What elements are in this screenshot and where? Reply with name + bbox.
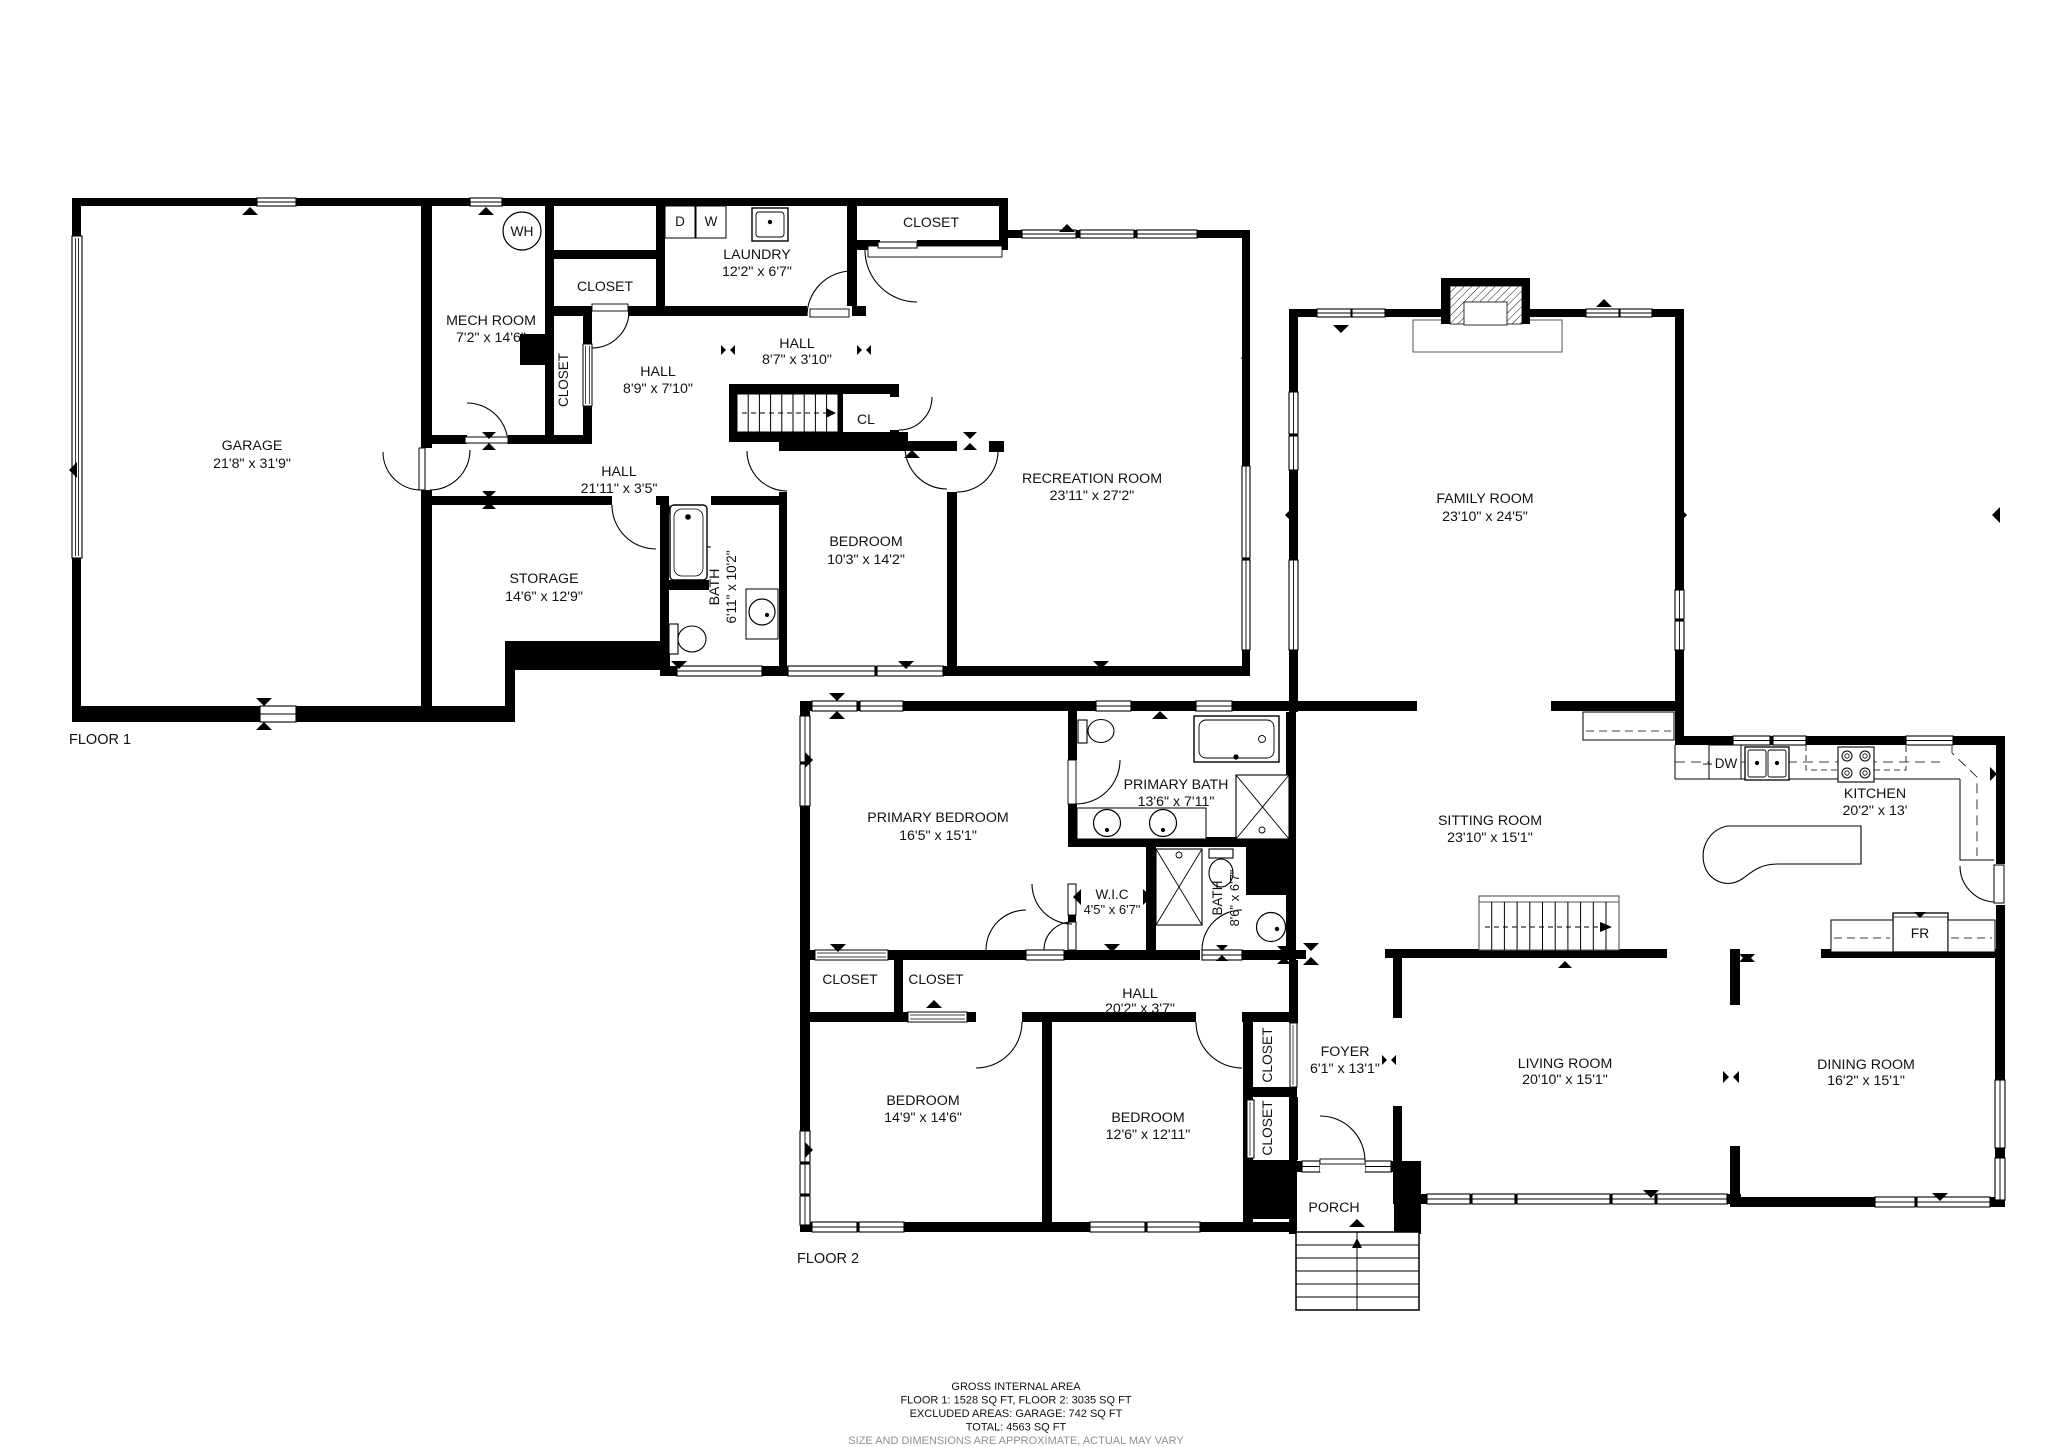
svg-text:BATH: BATH — [1210, 880, 1225, 915]
svg-text:LIVING ROOM: LIVING ROOM — [1518, 1056, 1613, 1072]
svg-text:10'3" x 14'2": 10'3" x 14'2" — [827, 552, 905, 568]
svg-text:PORCH: PORCH — [1308, 1200, 1359, 1216]
svg-text:KITCHEN: KITCHEN — [1844, 786, 1906, 802]
svg-text:BEDROOM: BEDROOM — [1111, 1110, 1184, 1126]
svg-text:HALL: HALL — [640, 364, 676, 380]
svg-text:HALL: HALL — [1122, 986, 1158, 1002]
svg-text:FLOOR 1: FLOOR 1 — [69, 732, 131, 748]
svg-text:8'9" x 7'10": 8'9" x 7'10" — [623, 381, 693, 397]
svg-text:21'11" x 3'5": 21'11" x 3'5" — [581, 481, 658, 497]
svg-text:LAUNDRY: LAUNDRY — [723, 247, 791, 263]
svg-text:20'10" x 15'1": 20'10" x 15'1" — [1522, 1072, 1608, 1088]
svg-text:W.I.C: W.I.C — [1096, 887, 1129, 902]
svg-text:12'2" x 6'7": 12'2" x 6'7" — [722, 264, 792, 280]
svg-text:WH: WH — [511, 224, 534, 239]
svg-text:12'6" x 12'11": 12'6" x 12'11" — [1106, 1127, 1191, 1143]
svg-text:16'5" x 15'1": 16'5" x 15'1" — [899, 828, 977, 844]
svg-text:SIZE AND DIMENSIONS ARE APPROX: SIZE AND DIMENSIONS ARE APPROXIMATE, ACT… — [848, 1435, 1184, 1447]
svg-text:MECH ROOM: MECH ROOM — [446, 313, 536, 329]
svg-text:CLOSET: CLOSET — [577, 278, 633, 294]
svg-text:23'11" x 27'2": 23'11" x 27'2" — [1050, 488, 1135, 504]
svg-text:6'1" x 13'1": 6'1" x 13'1" — [1310, 1061, 1380, 1077]
svg-text:PRIMARY BEDROOM: PRIMARY BEDROOM — [867, 810, 1008, 826]
svg-text:FLOOR 1: 1528 SQ FT, FLOOR 2:: FLOOR 1: 1528 SQ FT, FLOOR 2: 3035 SQ FT — [900, 1395, 1131, 1407]
svg-text:RECREATION ROOM: RECREATION ROOM — [1022, 471, 1162, 487]
svg-text:FOYER: FOYER — [1321, 1044, 1370, 1060]
svg-text:FR: FR — [1911, 926, 1929, 941]
svg-text:STORAGE: STORAGE — [509, 571, 578, 587]
svg-text:13'6" x 7'11": 13'6" x 7'11" — [1138, 794, 1215, 810]
svg-text:8'7" x 3'10": 8'7" x 3'10" — [762, 352, 832, 368]
svg-text:CLOSET: CLOSET — [1260, 1100, 1275, 1156]
svg-text:8'6" x 6'7": 8'6" x 6'7" — [1227, 869, 1242, 926]
svg-text:HALL: HALL — [779, 336, 815, 352]
svg-text:14'9" x 14'6": 14'9" x 14'6" — [884, 1110, 962, 1126]
svg-text:DW: DW — [1715, 756, 1738, 771]
svg-text:7'2" x 14'6": 7'2" x 14'6" — [456, 330, 526, 346]
svg-text:BEDROOM: BEDROOM — [829, 534, 902, 550]
svg-text:20'2" x 3'7": 20'2" x 3'7" — [1105, 1001, 1175, 1017]
svg-text:CLOSET: CLOSET — [556, 353, 571, 407]
svg-text:20'2" x 13': 20'2" x 13' — [1843, 803, 1908, 819]
svg-text:W: W — [705, 214, 718, 229]
svg-text:CLOSET: CLOSET — [908, 972, 964, 987]
svg-text:CLOSET: CLOSET — [822, 972, 878, 987]
svg-text:21'8" x 31'9": 21'8" x 31'9" — [213, 456, 291, 472]
svg-text:GARAGE: GARAGE — [222, 438, 283, 454]
svg-text:23'10" x 15'1": 23'10" x 15'1" — [1447, 830, 1533, 846]
svg-text:CLOSET: CLOSET — [1260, 1027, 1275, 1083]
svg-text:D: D — [675, 214, 685, 229]
svg-text:PRIMARY BATH: PRIMARY BATH — [1124, 777, 1229, 793]
svg-text:EXCLUDED AREAS: GARAGE: 742 SQ: EXCLUDED AREAS: GARAGE: 742 SQ FT — [910, 1408, 1123, 1420]
svg-text:CL: CL — [857, 411, 875, 427]
svg-text:CLOSET: CLOSET — [903, 214, 959, 230]
svg-text:DINING ROOM: DINING ROOM — [1817, 1057, 1915, 1073]
svg-text:4'5" x 6'7": 4'5" x 6'7" — [1084, 902, 1141, 917]
svg-text:HALL: HALL — [601, 464, 637, 480]
svg-text:TOTAL: 4563 SQ FT: TOTAL: 4563 SQ FT — [966, 1422, 1067, 1434]
svg-text:SITTING ROOM: SITTING ROOM — [1438, 813, 1542, 829]
svg-text:16'2" x 15'1": 16'2" x 15'1" — [1827, 1073, 1905, 1089]
svg-text:FAMILY ROOM: FAMILY ROOM — [1436, 491, 1533, 507]
svg-text:FLOOR 2: FLOOR 2 — [797, 1251, 859, 1267]
svg-text:23'10" x 24'5": 23'10" x 24'5" — [1442, 509, 1528, 525]
svg-text:BATH: BATH — [707, 569, 723, 606]
svg-text:GROSS INTERNAL AREA: GROSS INTERNAL AREA — [951, 1381, 1081, 1393]
svg-text:6'11" x 10'2": 6'11" x 10'2" — [724, 550, 739, 623]
svg-text:14'6" x 12'9": 14'6" x 12'9" — [505, 589, 583, 605]
svg-text:BEDROOM: BEDROOM — [886, 1093, 959, 1109]
